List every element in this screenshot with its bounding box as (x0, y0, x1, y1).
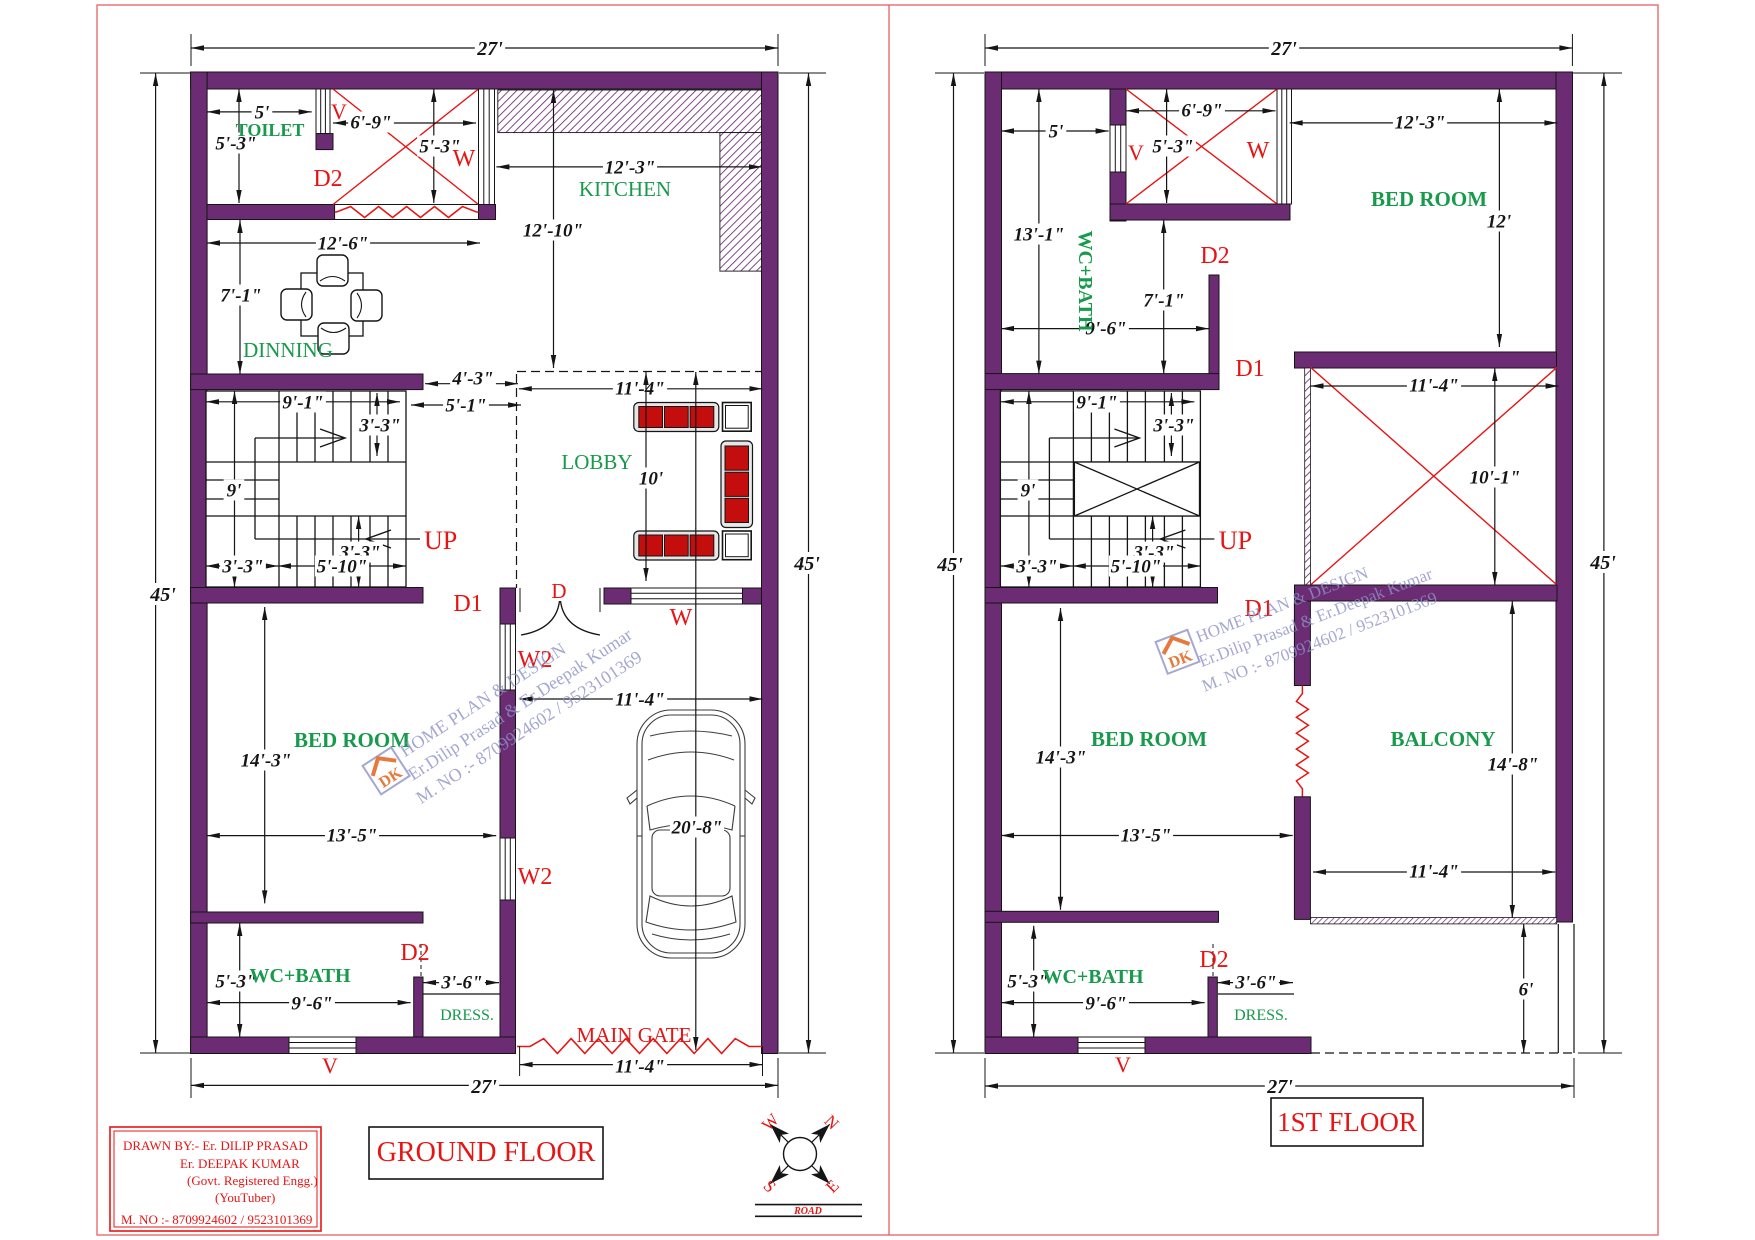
svg-text:9': 9' (1021, 481, 1036, 502)
svg-text:V: V (1128, 140, 1144, 165)
svg-text:M. NO :- 8709924602 / 95231013: M. NO :- 8709924602 / 9523101369 (121, 1212, 312, 1227)
svg-text:(YouTuber): (YouTuber) (215, 1190, 275, 1205)
svg-text:(Govt. Registered Engg.): (Govt. Registered Engg.) (187, 1173, 318, 1188)
svg-text:45': 45' (149, 584, 176, 606)
svg-text:6'-9": 6'-9" (350, 113, 391, 134)
svg-text:11'-4": 11'-4" (615, 690, 665, 711)
svg-text:W: W (1247, 138, 1270, 164)
svg-text:11'-4": 11'-4" (1409, 376, 1459, 397)
svg-text:12'-6": 12'-6" (318, 234, 369, 255)
svg-text:5'-3": 5'-3" (1152, 137, 1193, 158)
svg-text:5'-1": 5'-1" (445, 396, 486, 417)
svg-text:D1: D1 (1235, 356, 1264, 382)
svg-text:GROUND FLOOR: GROUND FLOOR (377, 1137, 596, 1168)
svg-text:11'-4": 11'-4" (615, 379, 665, 400)
svg-text:DRAWN BY:- Er. DILIP PRASAD: DRAWN BY:- Er. DILIP PRASAD (123, 1138, 308, 1153)
svg-text:D1: D1 (453, 591, 482, 617)
svg-text:6'-9": 6'-9" (1181, 101, 1222, 122)
svg-text:7'-1": 7'-1" (220, 286, 261, 307)
svg-text:45': 45' (936, 554, 963, 576)
svg-text:45': 45' (1589, 552, 1616, 574)
svg-text:14'-3": 14'-3" (241, 751, 292, 772)
svg-text:DRESS.: DRESS. (1234, 1007, 1288, 1024)
svg-text:10'-1": 10'-1" (1470, 468, 1521, 489)
svg-text:12'-10": 12'-10" (523, 221, 583, 242)
svg-text:D2: D2 (1199, 947, 1228, 973)
svg-text:27': 27' (1266, 1076, 1293, 1098)
svg-text:WC+BATH: WC+BATH (249, 965, 350, 987)
svg-text:BED ROOM: BED ROOM (1091, 727, 1207, 751)
svg-text:WC+BATH: WC+BATH (1042, 966, 1143, 988)
svg-text:45': 45' (793, 553, 820, 575)
svg-text:5'-10": 5'-10" (1111, 557, 1162, 578)
svg-text:27': 27' (1270, 38, 1297, 60)
svg-text:UP: UP (1219, 526, 1252, 555)
svg-text:W: W (670, 605, 693, 631)
svg-text:27': 27' (476, 38, 503, 60)
svg-text:TOILET: TOILET (236, 120, 305, 140)
svg-text:LOBBY: LOBBY (561, 450, 632, 474)
svg-text:DINNING: DINNING (243, 338, 333, 362)
svg-text:Er. DEEPAK KUMAR: Er. DEEPAK KUMAR (180, 1156, 300, 1171)
svg-text:3'-6": 3'-6" (1234, 973, 1276, 994)
svg-text:V: V (322, 1053, 338, 1078)
svg-text:BALCONY: BALCONY (1390, 727, 1495, 751)
svg-text:WC+BATH: WC+BATH (1074, 230, 1096, 331)
svg-text:V: V (1115, 1052, 1131, 1077)
svg-text:3'-3": 3'-3" (1015, 557, 1057, 578)
svg-text:3'-6": 3'-6" (440, 973, 482, 994)
svg-text:9'-1": 9'-1" (1076, 393, 1117, 414)
svg-text:6': 6' (1519, 980, 1534, 1001)
svg-text:1ST FLOOR: 1ST FLOOR (1277, 1107, 1417, 1137)
svg-text:27': 27' (470, 1076, 497, 1098)
svg-text:14'-8": 14'-8" (1488, 755, 1539, 776)
svg-text:ROAD: ROAD (793, 1206, 822, 1217)
svg-text:9'-6": 9'-6" (291, 994, 332, 1015)
svg-text:KITCHEN: KITCHEN (579, 177, 671, 201)
svg-text:3'-3": 3'-3" (1152, 416, 1194, 437)
svg-text:D: D (551, 579, 566, 603)
svg-text:5'-10": 5'-10" (317, 557, 368, 578)
svg-text:14'-3": 14'-3" (1036, 748, 1087, 769)
svg-text:3'-3": 3'-3" (221, 557, 263, 578)
svg-text:13'-1": 13'-1" (1014, 225, 1065, 246)
svg-text:10': 10' (639, 469, 663, 490)
svg-text:12'-3": 12'-3" (605, 158, 656, 179)
svg-text:11'-4": 11'-4" (615, 1057, 665, 1078)
svg-text:11'-4": 11'-4" (1409, 862, 1459, 883)
svg-text:D2: D2 (1200, 243, 1229, 269)
svg-text:W: W (453, 146, 476, 172)
svg-text:9'-6": 9'-6" (1085, 994, 1126, 1015)
svg-text:DRESS.: DRESS. (440, 1007, 494, 1024)
svg-text:9'-1": 9'-1" (282, 393, 323, 414)
svg-text:12': 12' (1487, 212, 1511, 233)
svg-text:D2: D2 (313, 166, 342, 192)
svg-text:13'-5": 13'-5" (1121, 826, 1172, 847)
svg-text:3'-3": 3'-3" (358, 416, 400, 437)
svg-text:D2: D2 (400, 940, 429, 966)
svg-text:4'-3": 4'-3" (451, 369, 493, 390)
svg-text:W2: W2 (518, 864, 553, 890)
svg-text:BED ROOM: BED ROOM (1371, 187, 1487, 211)
svg-text:UP: UP (424, 526, 457, 555)
svg-text:V: V (331, 99, 347, 124)
svg-text:MAIN GATE: MAIN GATE (577, 1023, 692, 1047)
svg-text:20'-8": 20'-8" (671, 818, 723, 839)
svg-text:5': 5' (1049, 122, 1064, 143)
svg-text:13'-5": 13'-5" (327, 826, 378, 847)
svg-text:12'-3": 12'-3" (1395, 113, 1446, 134)
svg-text:9': 9' (227, 481, 242, 502)
svg-text:7'-1": 7'-1" (1143, 291, 1184, 312)
